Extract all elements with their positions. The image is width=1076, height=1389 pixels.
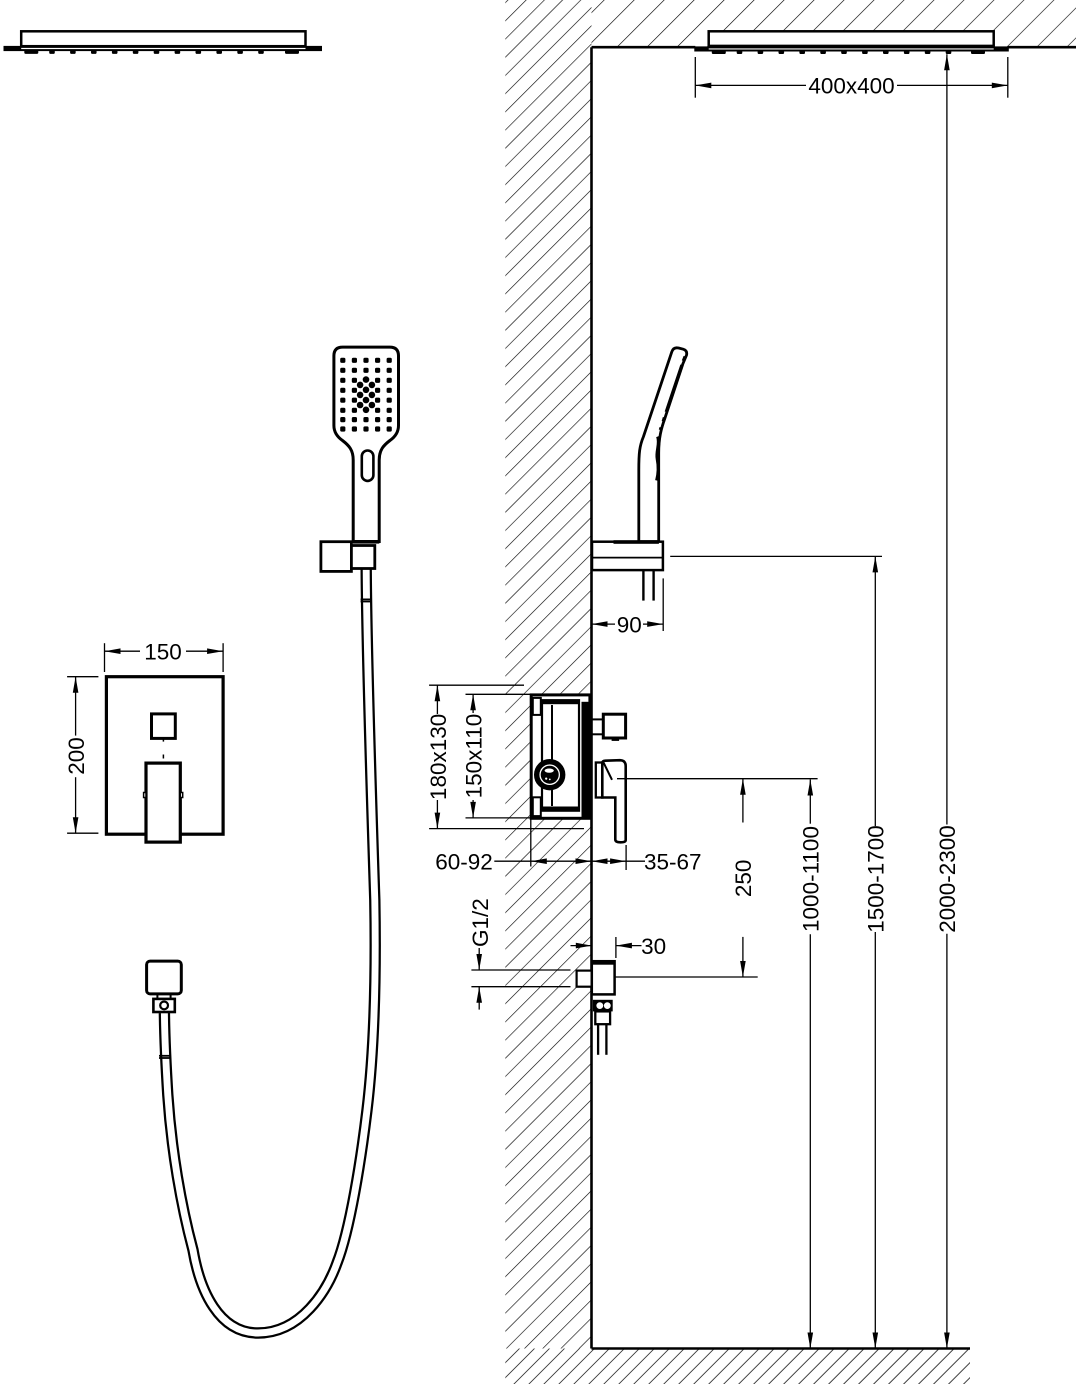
svg-text:35-67: 35-67 <box>644 849 702 874</box>
svg-text:2000-2300: 2000-2300 <box>935 825 960 933</box>
svg-text:150x110: 150x110 <box>462 714 487 799</box>
svg-text:200: 200 <box>64 737 89 775</box>
svg-text:90: 90 <box>617 612 642 637</box>
svg-text:30: 30 <box>641 934 666 959</box>
svg-text:150: 150 <box>144 640 182 665</box>
svg-text:400x400: 400x400 <box>808 73 894 98</box>
svg-text:G1/2: G1/2 <box>468 898 493 947</box>
svg-text:60-92: 60-92 <box>435 849 493 874</box>
svg-text:1000-1100: 1000-1100 <box>799 826 824 932</box>
svg-text:1500-1700: 1500-1700 <box>864 825 889 933</box>
svg-text:180x130: 180x130 <box>426 714 451 800</box>
svg-text:250: 250 <box>731 860 756 898</box>
